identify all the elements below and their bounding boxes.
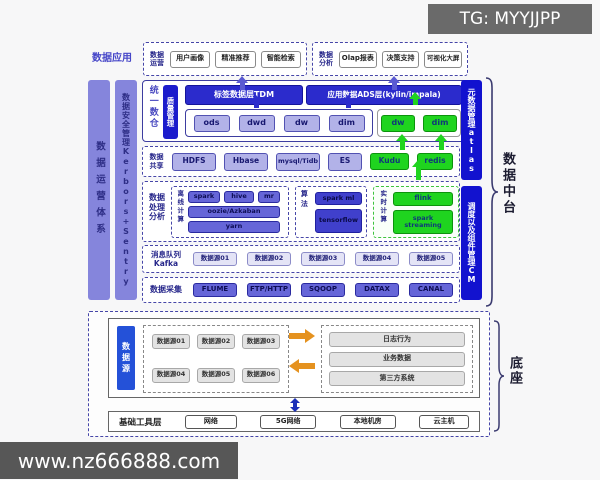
collect-datax: DATAX (355, 283, 399, 297)
share-hbase: Hbase (224, 153, 268, 171)
quality-mgmt-bar: 质量管理 (163, 85, 178, 139)
target-log-behavior: 日志行为 (329, 332, 465, 347)
source-06: 数据源06 (242, 368, 280, 383)
source-01: 数据源01 (152, 334, 190, 349)
kafka-src-03: 数据源03 (301, 252, 345, 266)
left-bar-data-security: 数据安全管理Kerbors+Sentry (115, 80, 137, 300)
share-kudu: Kudu (370, 153, 409, 170)
tools-label: 基础工具层 (119, 416, 162, 428)
data-source-bar: 数据源 (117, 326, 135, 390)
layer-ods: ods (194, 115, 230, 132)
data-analysis-group: 数据分析 Olap报表 决策支持 可视化大屏 (312, 42, 468, 76)
base-brace-label: 底座 (505, 356, 524, 386)
base-brace (492, 319, 505, 433)
app-item-olap: Olap报表 (339, 51, 377, 68)
warehouse-label: 统一数仓 (147, 85, 158, 139)
group-label-analysis: 数据分析 (318, 51, 334, 68)
collect-canal: CANAL (409, 283, 453, 297)
kafka-src-02: 数据源02 (247, 252, 291, 266)
rt-flink: flink (393, 192, 453, 206)
green-up-arrow-icon (409, 92, 421, 105)
up-arrow-icon (342, 95, 354, 108)
kafka-src-01: 数据源01 (193, 252, 237, 266)
green-layers-box: dw dim (377, 109, 461, 137)
kafka-src-04: 数据源04 (355, 252, 399, 266)
realtime-compute-box: 实时计算 flink spark streaming (373, 186, 459, 238)
up-arrow-icon (388, 76, 400, 90)
data-collection-row: 数据采集 FLUME FTP/HTTP SQOOP DATAX CANAL (142, 277, 460, 303)
target-business-data: 业务数据 (329, 352, 465, 367)
green-up-arrow-icon (396, 134, 408, 150)
blue-double-arrow-icon (290, 398, 300, 412)
target-third-party: 第三方系统 (329, 371, 465, 386)
app-section-label: 数据应用 (92, 53, 132, 65)
left-bar-data-ops-system: 数据运营体系 (88, 80, 110, 300)
source-02: 数据源02 (197, 334, 235, 349)
algo-tensorflow: tensorflow (315, 209, 362, 233)
share-mysql: mysql/Tidb (276, 153, 320, 171)
targets-box: 日志行为 业务数据 第三方系统 (321, 325, 473, 393)
app-item-user-profile: 用户画像 (170, 51, 210, 68)
up-arrow-icon (250, 95, 262, 108)
group-label-ops: 数据运营 (149, 51, 165, 68)
ads-layer-header: 应用数据ADS层(kylin/impala) (306, 85, 462, 105)
processing-label: 数据处理分析 (148, 193, 166, 222)
tool-local-idc: 本地机房 (340, 415, 396, 429)
data-ops-group: 数据运营 用户画像 精准推荐 智能检索 (143, 42, 307, 76)
right-bar-scheduling-cm: 调度以及组件管理CM (461, 186, 482, 300)
share-es: ES (328, 153, 362, 171)
source-05: 数据源05 (197, 368, 235, 383)
dw-layers-box: ods dwd dw dim (185, 109, 373, 137)
orange-left-arrow-icon (289, 359, 315, 373)
collect-label: 数据采集 (149, 285, 183, 295)
engine-spark: spark (188, 191, 220, 203)
collect-ftp: FTP/HTTP (247, 283, 291, 297)
sharing-label: 数据共享 (149, 153, 164, 170)
offline-compute-box: 离线计算 spark hive mr oozie/Azkaban yarn (171, 186, 289, 238)
resource-yarn: yarn (188, 221, 280, 233)
collect-sqoop: SQOOP (301, 283, 345, 297)
app-item-recommend: 精准推荐 (215, 51, 255, 68)
app-item-decision: 决策支持 (382, 51, 420, 68)
layer-dw: dw (284, 115, 320, 132)
app-item-search: 智能检索 (261, 51, 301, 68)
engine-mr: mr (258, 191, 280, 203)
algo-sparkml: spark ml (315, 192, 362, 205)
tg-badge: TG: MYYJJPP (428, 4, 592, 34)
rt-spark-streaming: spark streaming (393, 210, 453, 234)
algorithm-box: 算法 spark ml tensorflow (295, 186, 367, 238)
orange-right-arrow-icon (289, 329, 315, 343)
layer-dwd: dwd (239, 115, 275, 132)
watermark: www.nz666888.com (0, 442, 238, 479)
source-04: 数据源04 (152, 368, 190, 383)
unified-warehouse-section: 统一数仓 质量管理 标签数据层TDM 应用数据ADS层(kylin/impala… (142, 80, 468, 142)
layer-dim: dim (329, 115, 365, 132)
green-layer-dw: dw (381, 115, 415, 132)
diagram-canvas: TG: MYYJJPP www.nz666888.com 数据应用 数据运营 用… (0, 0, 600, 480)
kafka-label: 消息队列Kafka (149, 250, 183, 268)
app-item-bigscreen: 可视化大屏 (424, 51, 462, 68)
message-queue-row: 消息队列Kafka 数据源01 数据源02 数据源03 数据源04 数据源05 (142, 245, 460, 273)
offline-label: 离线计算 (175, 190, 183, 236)
green-layer-dim: dim (423, 115, 457, 132)
sources-box: 数据源01 数据源02 数据源03 数据源04 数据源05 数据源06 (143, 325, 289, 393)
data-processing-row: 数据处理分析 离线计算 spark hive mr oozie/Azkaban … (142, 181, 460, 242)
realtime-label: 实时计算 (378, 190, 386, 236)
middle-brace (484, 76, 499, 308)
collect-flume: FLUME (193, 283, 237, 297)
tool-5g: 5G网络 (260, 415, 316, 429)
tool-network: 网络 (185, 415, 237, 429)
tool-cloud: 云主机 (419, 415, 469, 429)
algorithm-label: 算法 (300, 190, 308, 236)
share-hdfs: HDFS (172, 153, 216, 171)
green-up-arrow-icon (412, 160, 424, 180)
source-03: 数据源03 (242, 334, 280, 349)
scheduler-oozie: oozie/Azkaban (188, 206, 280, 218)
up-arrow-icon (236, 76, 248, 90)
green-up-arrow-icon (435, 134, 447, 150)
kafka-src-05: 数据源05 (409, 252, 453, 266)
right-bar-metadata-atlas: 元数据管理atlas (461, 80, 482, 180)
engine-hive: hive (224, 191, 254, 203)
middle-brace-label: 数据中台 (498, 152, 517, 216)
base-tools-row: 基础工具层 网络 5G网络 本地机房 云主机 (108, 411, 480, 432)
